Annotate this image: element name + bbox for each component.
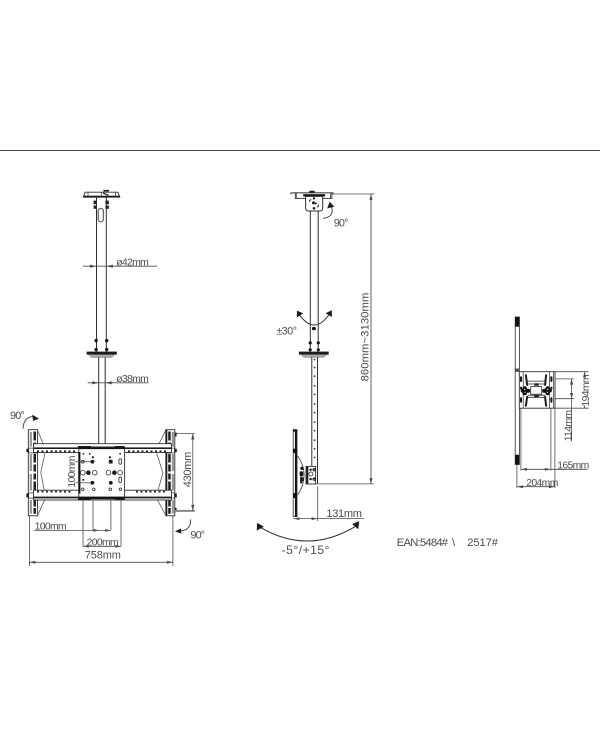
- svg-text:2517#: 2517#: [467, 537, 498, 549]
- svg-text:758mm: 758mm: [85, 549, 121, 561]
- svg-text:90°: 90°: [10, 410, 24, 422]
- svg-text:100mm: 100mm: [35, 521, 66, 532]
- svg-text:114mm: 114mm: [563, 411, 574, 442]
- svg-text:204mm: 204mm: [526, 478, 557, 489]
- svg-text:±30°: ±30°: [276, 326, 296, 338]
- svg-text:90°: 90°: [190, 529, 204, 541]
- svg-text:EAN:5484#: EAN:5484#: [397, 537, 449, 549]
- svg-text:131mm: 131mm: [326, 508, 361, 520]
- svg-text:860mm~3130mm: 860mm~3130mm: [359, 293, 371, 382]
- svg-text:-5°/+15°: -5°/+15°: [282, 543, 330, 557]
- svg-text:ø42mm: ø42mm: [116, 257, 148, 268]
- svg-text:165mm: 165mm: [557, 461, 588, 472]
- svg-text:ø38mm: ø38mm: [116, 374, 148, 385]
- svg-text:194mm: 194mm: [581, 375, 592, 406]
- svg-text:100mm: 100mm: [67, 456, 78, 487]
- svg-text:90°: 90°: [334, 218, 348, 230]
- svg-text:430mm: 430mm: [182, 452, 194, 487]
- svg-text:200mm: 200mm: [87, 538, 118, 549]
